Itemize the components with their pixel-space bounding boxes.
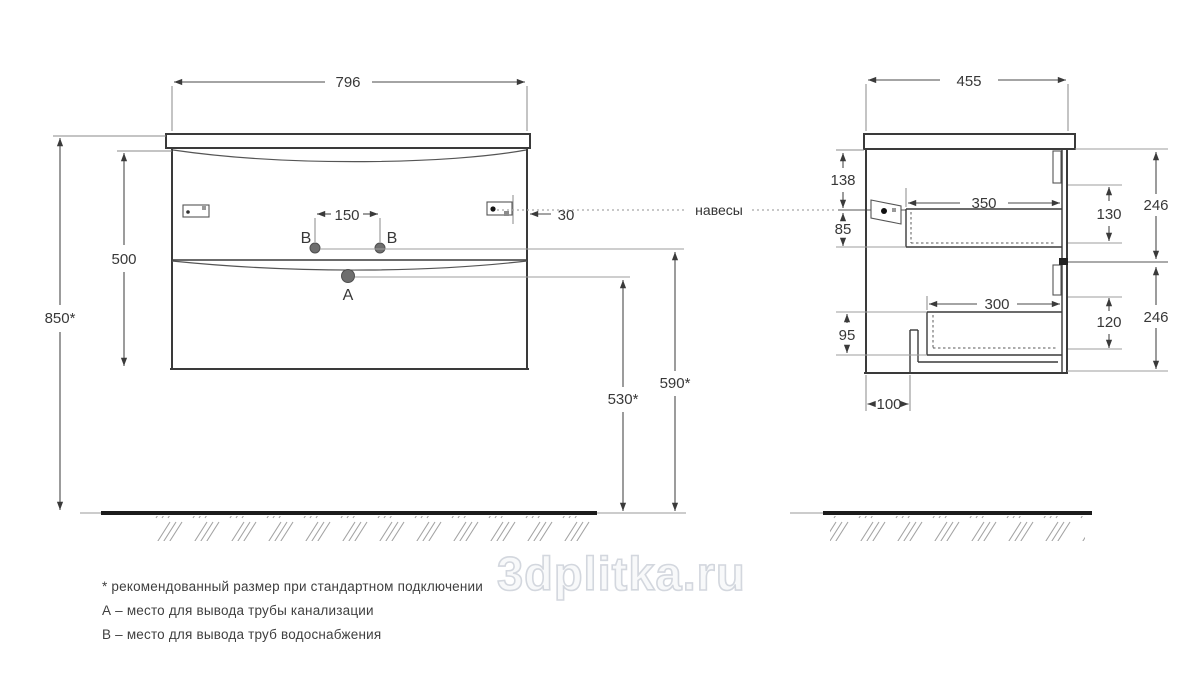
technical-drawing: 3dplitka.ru	[0, 0, 1200, 683]
side-hanger-bracket	[871, 200, 901, 224]
point-a	[342, 270, 355, 283]
upper-rail	[1053, 151, 1061, 183]
dim-hole-spacing: 150	[315, 207, 380, 242]
dim-text-100: 100	[876, 396, 901, 413]
dim-cabinet-height: 500	[111, 151, 172, 366]
drawer-fronts	[1053, 151, 1068, 295]
dim-text-500: 500	[111, 251, 136, 268]
point-b-left	[310, 243, 320, 253]
dim-text-455: 455	[956, 73, 981, 90]
dim-text-590: 590*	[660, 375, 691, 392]
note-asterisk: * рекомендованный размер при стандартном…	[102, 575, 483, 599]
dim-text-246-top: 246	[1143, 197, 1168, 214]
front-cabinet-body	[171, 148, 528, 369]
note-b: В – место для вывода труб водоснабжения	[102, 623, 483, 647]
sink-curve	[173, 150, 526, 162]
lower-rail	[1053, 265, 1061, 295]
dim-drawer2-depth: 300	[927, 296, 1060, 313]
dim-text-850: 850*	[45, 310, 76, 327]
floor-right	[790, 513, 1092, 541]
dim-pipe-offset: 100	[868, 396, 909, 413]
dim-text-130: 130	[1096, 206, 1121, 223]
footnotes: * рекомендованный размер при стандартном…	[102, 575, 483, 647]
hanger-bracket-right	[487, 195, 513, 224]
dim-top-to-hanger: 138	[830, 150, 864, 208]
dim-text-30: 30	[558, 207, 575, 224]
drain-point: A	[342, 270, 631, 305]
front-view: 796 500 850* 150	[45, 74, 691, 511]
dim-text-246-bottom: 246	[1143, 309, 1168, 326]
side-carcass	[865, 149, 1067, 373]
label-b-right: B	[387, 230, 398, 247]
lower-drawer	[927, 312, 1062, 355]
upper-drawer	[906, 209, 1062, 247]
dim-text-796: 796	[335, 74, 360, 91]
floor-left	[80, 513, 686, 541]
dim-drawer2-height: 120	[1068, 297, 1122, 349]
dim-front-width: 796	[172, 74, 527, 131]
front-gap	[1059, 258, 1068, 265]
dim-text-300: 300	[984, 296, 1009, 313]
label-b-left: B	[301, 230, 312, 247]
side-countertop	[864, 134, 1075, 149]
dim-drain-outlet-height: 530*	[608, 280, 639, 511]
dim-depth: 455	[866, 73, 1068, 131]
side-right-refs	[1067, 149, 1168, 371]
dim-text-120: 120	[1096, 314, 1121, 331]
dim-front-top: 246	[1143, 152, 1168, 259]
dim-bottom-clearance: 95	[836, 312, 927, 355]
dim-text-138: 138	[830, 172, 855, 189]
side-view: 455 138 85 350	[830, 73, 1168, 413]
dim-drawer1-height: 130	[1068, 185, 1122, 243]
dim-text-150: 150	[334, 207, 359, 224]
dim-text-530: 530*	[608, 391, 639, 408]
point-b-right	[375, 243, 385, 253]
water-supply-points: B B	[301, 230, 684, 253]
dim-text-85: 85	[835, 221, 852, 238]
dim-text-95: 95	[839, 327, 856, 344]
dim-mount-height: 850*	[45, 136, 166, 510]
hanger-bracket-left	[183, 205, 209, 217]
dim-front-bottom: 246	[1143, 267, 1168, 369]
front-countertop	[166, 134, 530, 148]
dim-text-350: 350	[971, 195, 996, 212]
label-a: A	[343, 287, 354, 304]
hangers-label: навесы	[695, 202, 743, 218]
note-a: А – место для вывода трубы канализации	[102, 599, 483, 623]
front-drawer-split	[172, 260, 527, 270]
dim-water-outlet-height: 590*	[660, 252, 691, 511]
